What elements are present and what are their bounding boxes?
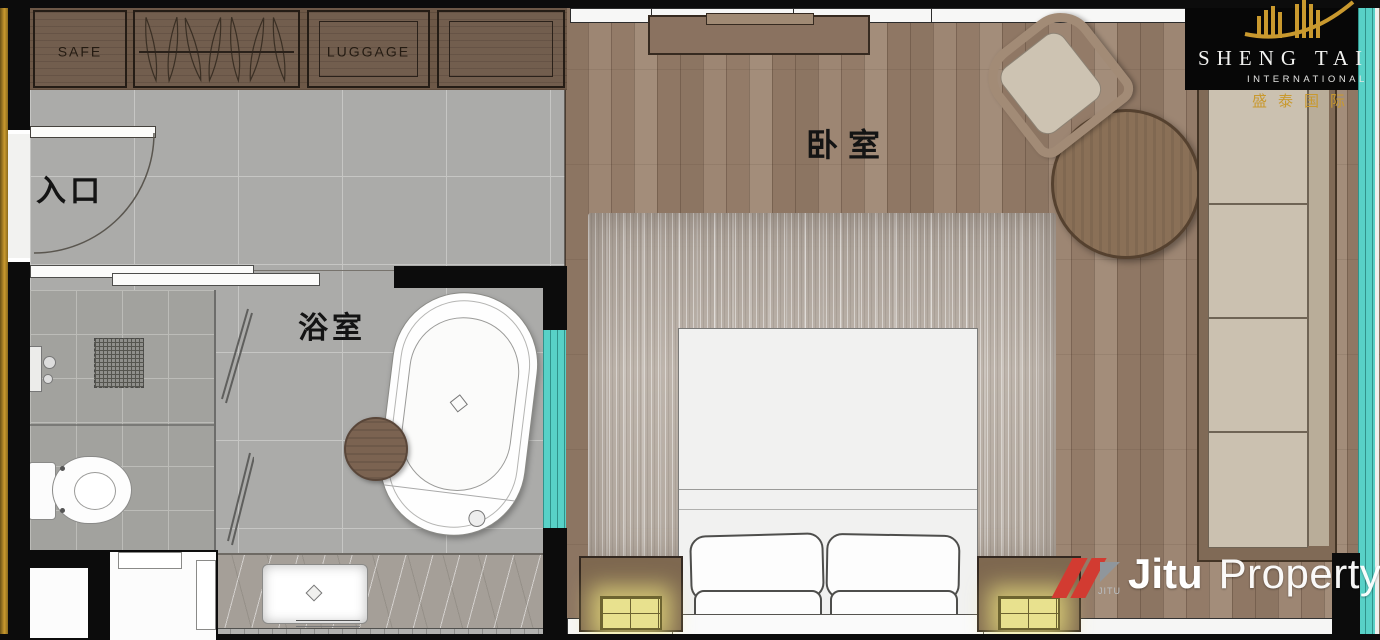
building-icon: [1243, 0, 1355, 42]
sliding-door-panel: [112, 273, 320, 286]
cushion-divider: [1209, 203, 1307, 205]
cushion-divider: [1209, 431, 1307, 433]
niche: [30, 568, 88, 638]
jitu-mini-label: JITU: [1098, 586, 1121, 596]
cushion-divider: [1209, 317, 1307, 319]
wall-bath-lower: [543, 528, 567, 640]
sofa-backrest: [1308, 88, 1329, 546]
shower-knob-icon: [43, 356, 56, 369]
window-glass-right: [1358, 0, 1375, 640]
lamp-icon: [998, 596, 1060, 630]
entrance-label: 入口: [36, 166, 104, 210]
closet-rod: [139, 51, 294, 53]
jitu-wordmark: Jitu Property: [1128, 550, 1380, 598]
toilet-hinge: [60, 508, 65, 513]
sofa-cushions: [1208, 88, 1308, 548]
window-frame-edge: [1375, 0, 1379, 640]
nightstand-left: [579, 556, 683, 632]
bedroom-label: 卧室: [806, 120, 890, 166]
sofa: [1197, 76, 1337, 562]
entrance-door-opening: [8, 130, 30, 262]
niche-detail: [118, 552, 182, 569]
duvet-fold-line: [679, 489, 977, 490]
shengtai-subtitle: INTERNATIONAL: [1247, 74, 1368, 85]
shower-area-floor: [30, 290, 216, 555]
shower-knob-icon: [43, 374, 53, 384]
luggage-label: LUGGAGE: [309, 43, 428, 59]
wall-bath-horizontal: [394, 266, 567, 288]
wall-bath-vertical: [543, 266, 567, 330]
jitu-triangle-icon: [1100, 562, 1120, 582]
wardrobe: SAFE LUGGAGE: [30, 8, 567, 90]
wall-top: [0, 0, 1380, 8]
shelf-outline: [449, 21, 553, 77]
floor-plan: SAFE LUGGAGE: [0, 0, 1380, 640]
shelf-compartment: [437, 10, 565, 88]
jitu-suffix: Property: [1219, 550, 1380, 598]
bathroom-label: 浴室: [298, 303, 366, 347]
lamp-icon: [600, 596, 662, 630]
jitu-brand: Jitu: [1128, 550, 1203, 598]
wood-stool: [344, 417, 408, 481]
shengtai-name: SHENG TAI: [1198, 46, 1369, 71]
shower-floor-joint: [30, 424, 216, 426]
shower-fixture-icon: [28, 346, 42, 392]
faucet-icon: [296, 620, 360, 627]
hangers-icon: [135, 12, 298, 86]
duvet-fold-line: [679, 509, 977, 510]
shower-glass-doors-icon: [208, 295, 254, 555]
gold-border-strip: [0, 8, 8, 640]
tv-icon: [706, 13, 814, 25]
toilet-hinge: [60, 466, 65, 471]
wall-left-upper: [8, 0, 30, 132]
wall-left-lower: [8, 254, 30, 554]
floor-drain-icon: [94, 338, 144, 388]
jitu-logo: JITU Jitu Property: [1058, 550, 1368, 610]
shengtai-chinese: 盛泰国际: [1252, 90, 1356, 111]
safe-label: SAFE: [35, 43, 125, 59]
niche-detail: [196, 560, 216, 630]
ledge-divider: [931, 9, 932, 22]
bathroom-window-glass: [543, 330, 566, 528]
safe-compartment: SAFE: [33, 10, 127, 88]
luggage-compartment: LUGGAGE: [307, 10, 430, 88]
hanging-compartment: [133, 10, 300, 88]
toilet-bowl-inner: [74, 472, 116, 510]
